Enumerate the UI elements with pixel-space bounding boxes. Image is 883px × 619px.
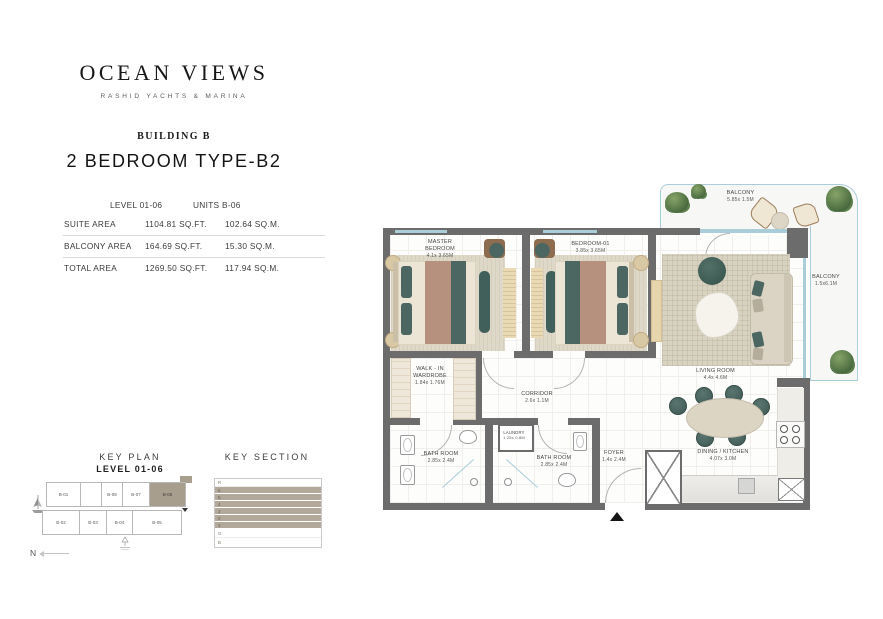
pillow: [401, 303, 412, 335]
plant-icon: [826, 186, 852, 212]
plant-icon: [691, 184, 706, 199]
nightstand: [633, 332, 649, 348]
plant-icon: [830, 350, 854, 374]
row-sqm: 117.94 SQ.M.: [225, 258, 279, 279]
room-label-bath1: BATH ROOM 2.85x 2.4M: [420, 451, 462, 465]
row-sqft: 1104.81 SQ.FT.: [145, 214, 207, 235]
laundry-closet: LAUNDRY 1.25x 0.8M: [498, 424, 534, 452]
bed-blanket: [425, 261, 451, 344]
room-label-bath2: BATH ROOM 2.85x 2.4M: [533, 455, 575, 469]
brand-column: OCEAN VIEWS RASHID YACHTS & MARINA BUILD…: [63, 60, 285, 172]
room-label-corridor: CORRIDOR 2.6x 1.1M: [517, 391, 557, 405]
room-label-living: LIVING ROOM 4.4x 4.6M: [693, 368, 738, 382]
landmark-icon: [118, 536, 132, 552]
wall: [475, 358, 482, 418]
table-row: TOTAL AREA 1269.50 SQ.FT. 117.94 SQ.M.: [63, 257, 325, 279]
pillow: [401, 266, 412, 298]
wall: [390, 418, 420, 425]
pillow: [617, 266, 628, 298]
armchair: [484, 239, 505, 258]
row-sqm: 15.30 SQ.M.: [225, 236, 275, 257]
north-label: N: [30, 548, 36, 558]
bathroom-sink: [400, 435, 415, 455]
wardrobe: [391, 358, 411, 418]
burner: [792, 436, 800, 444]
glass-door: [700, 229, 787, 233]
wall: [648, 228, 700, 235]
kitchen-counter: [680, 475, 778, 502]
room-name: BALCONY: [800, 274, 852, 281]
unit-cell: B-01: [46, 482, 81, 507]
row-label: BALCONY AREA: [64, 236, 132, 257]
window: [543, 230, 597, 233]
room-dims: 4.07x 3.0M: [691, 456, 755, 463]
wall: [514, 351, 553, 358]
room-dims: 3.85x 3.65M: [568, 248, 613, 255]
sofa-pillow: [752, 348, 763, 361]
kitchen-sink: [738, 478, 755, 494]
room-name: WALK - IN WARDROBE: [412, 366, 448, 380]
row-sqm: 102.64 SQ.M.: [225, 214, 280, 235]
section-floor-highlighted: 4: [215, 501, 321, 508]
bed-throw: [451, 261, 466, 344]
area-table: LEVEL 01-06 UNITS B-06 SUITE AREA 1104.8…: [63, 197, 325, 279]
unit-cell: [80, 482, 102, 507]
room-name: BATH ROOM: [420, 451, 462, 458]
section-floor-highlighted: 6: [215, 487, 321, 494]
wall: [585, 351, 656, 358]
sofa-pillow: [752, 298, 764, 312]
entrance-arrow: [610, 512, 624, 521]
wall: [787, 228, 808, 258]
bed-blanket: [580, 261, 606, 344]
plant-icon: [665, 192, 689, 213]
burner: [780, 425, 788, 433]
row-label: TOTAL AREA: [64, 258, 117, 279]
brand-subtitle: RASHID YACHTS & MARINA: [63, 93, 285, 100]
room-dims: 4.1x 3.65M: [417, 253, 463, 260]
row-sqft: 1269.50 SQ.FT.: [145, 258, 207, 279]
unit-cell-highlighted: B-06: [149, 482, 186, 507]
north-arrow-icon: [43, 553, 69, 554]
unit-cell: B-07: [122, 482, 150, 507]
unit-cell: B-08: [101, 482, 123, 507]
wall: [383, 503, 605, 510]
wall: [777, 378, 803, 387]
bed-bench: [479, 271, 490, 333]
keyplan-bottom-row: B-02 B-03 B-04 B-05: [43, 510, 182, 535]
key-section-title: KEY SECTION: [212, 452, 322, 462]
unit-marker-icon: [182, 508, 188, 512]
room-name: LIVING ROOM: [693, 368, 738, 375]
unit-type-title: 2 BEDROOM TYPE-B2: [63, 151, 285, 172]
room-label-walkin: WALK - IN WARDROBE 1.84x 1.76M: [412, 366, 448, 387]
building-label: BUILDING B: [63, 131, 285, 142]
key-section-box: R 6 5 4 3 2 1 G B: [214, 478, 322, 548]
tv-console: [651, 280, 662, 342]
section-floor-highlighted: 2: [215, 515, 321, 522]
wall: [568, 418, 592, 425]
wall: [522, 235, 530, 351]
dining-table: [686, 398, 764, 438]
room-name: FOYER: [597, 450, 631, 457]
unit-cell: B-05: [132, 510, 182, 535]
stove: [776, 421, 805, 448]
room-name: BATH ROOM: [533, 455, 575, 462]
row-label: SUITE AREA: [64, 214, 116, 235]
units-label: UNITS B-06: [193, 197, 241, 214]
wardrobe: [453, 358, 476, 420]
wall: [485, 418, 493, 503]
section-floor-highlighted: 5: [215, 494, 321, 501]
room-dims: 1.4x 2.4M: [597, 457, 631, 464]
room-label-balcony-top: BALCONY 5.85x 1.5M: [713, 190, 768, 204]
unit-cell: B-02: [42, 510, 80, 535]
service-shaft: [778, 478, 805, 501]
keyplan-top-row: B-01 B-08 B-07 B-06: [47, 482, 186, 507]
section-floor: B: [215, 538, 321, 547]
key-plan: KEY PLAN LEVEL 01-06 B-01 B-08 B-07 B-06…: [30, 452, 225, 567]
pouf: [698, 257, 726, 285]
wardrobe: [503, 268, 516, 338]
burner: [792, 425, 800, 433]
wall: [390, 351, 482, 358]
key-plan-title: KEY PLAN: [65, 452, 195, 462]
room-label-master: MASTER BEDROOM 4.1x 3.65M: [417, 239, 463, 260]
room-dims: 2.85x 2.4M: [533, 462, 575, 469]
key-section: KEY SECTION R 6 5 4 3 2 1 G B: [212, 452, 324, 567]
unit-cell: B-03: [79, 510, 107, 535]
room-dims: 1.25x 0.8M: [500, 435, 528, 440]
room-name: MASTER BEDROOM: [417, 239, 463, 253]
nightstand: [633, 255, 649, 271]
shower-head: [470, 478, 478, 486]
window: [395, 230, 447, 233]
area-table-header: LEVEL 01-06 UNITS B-06: [63, 197, 325, 214]
section-floor-highlighted: 1: [215, 522, 321, 529]
room-dims: 1.84x 1.76M: [412, 380, 448, 387]
room-name: BALCONY: [713, 190, 768, 197]
room-dims: 5.85x 1.5M: [713, 197, 768, 204]
toilet: [558, 473, 576, 487]
dining-chair: [669, 397, 687, 415]
shower-head: [504, 478, 512, 486]
room-label-balcony-right: BALCONY 1.5x6.1M: [800, 274, 852, 288]
brand-logo: OCEAN VIEWS: [63, 60, 285, 86]
room-name: BEDROOM-01: [568, 241, 613, 248]
room-name: DINING / KITCHEN: [691, 449, 755, 456]
key-plan-level: LEVEL 01-06: [65, 464, 195, 474]
wardrobe: [531, 268, 543, 338]
section-floor: R: [215, 479, 321, 487]
elevator-shaft: [645, 450, 682, 506]
bathroom-sink: [400, 465, 415, 485]
burner: [780, 436, 788, 444]
bathroom-sink: [573, 432, 587, 451]
table-row: SUITE AREA 1104.81 SQ.FT. 102.64 SQ.M.: [63, 214, 325, 235]
floor-plan: LAUNDRY 1.25x 0.8M: [383, 182, 861, 524]
room-dims: 2.85x 2.4M: [420, 458, 462, 465]
room-name: CORRIDOR: [517, 391, 557, 398]
pillow: [617, 303, 628, 335]
room-dims: 4.4x 4.6M: [693, 375, 738, 382]
room-label-foyer: FOYER 1.4x 2.4M: [597, 450, 631, 464]
row-sqft: 164.69 SQ.FT.: [145, 236, 202, 257]
toilet: [459, 430, 477, 444]
section-floor-highlighted: 3: [215, 508, 321, 515]
room-label-dining: DINING / KITCHEN 4.07x 3.0M: [691, 449, 755, 463]
room-dims: 1.5x6.1M: [800, 281, 852, 288]
brochure-page: OCEAN VIEWS RASHID YACHTS & MARINA BUILD…: [0, 0, 883, 619]
bed-headboard: [629, 262, 634, 342]
bed-throw: [565, 261, 580, 344]
sofa-backrest: [784, 274, 791, 362]
armchair: [534, 239, 555, 258]
unit-cell: B-04: [106, 510, 133, 535]
table-row: BALCONY AREA 164.69 SQ.FT. 15.30 SQ.M.: [63, 235, 325, 257]
room-dims: 2.6x 1.1M: [517, 398, 557, 405]
level-label: LEVEL 01-06: [110, 197, 162, 214]
section-floor: G: [215, 529, 321, 538]
room-label-bedroom01: BEDROOM-01 3.85x 3.65M: [568, 241, 613, 255]
